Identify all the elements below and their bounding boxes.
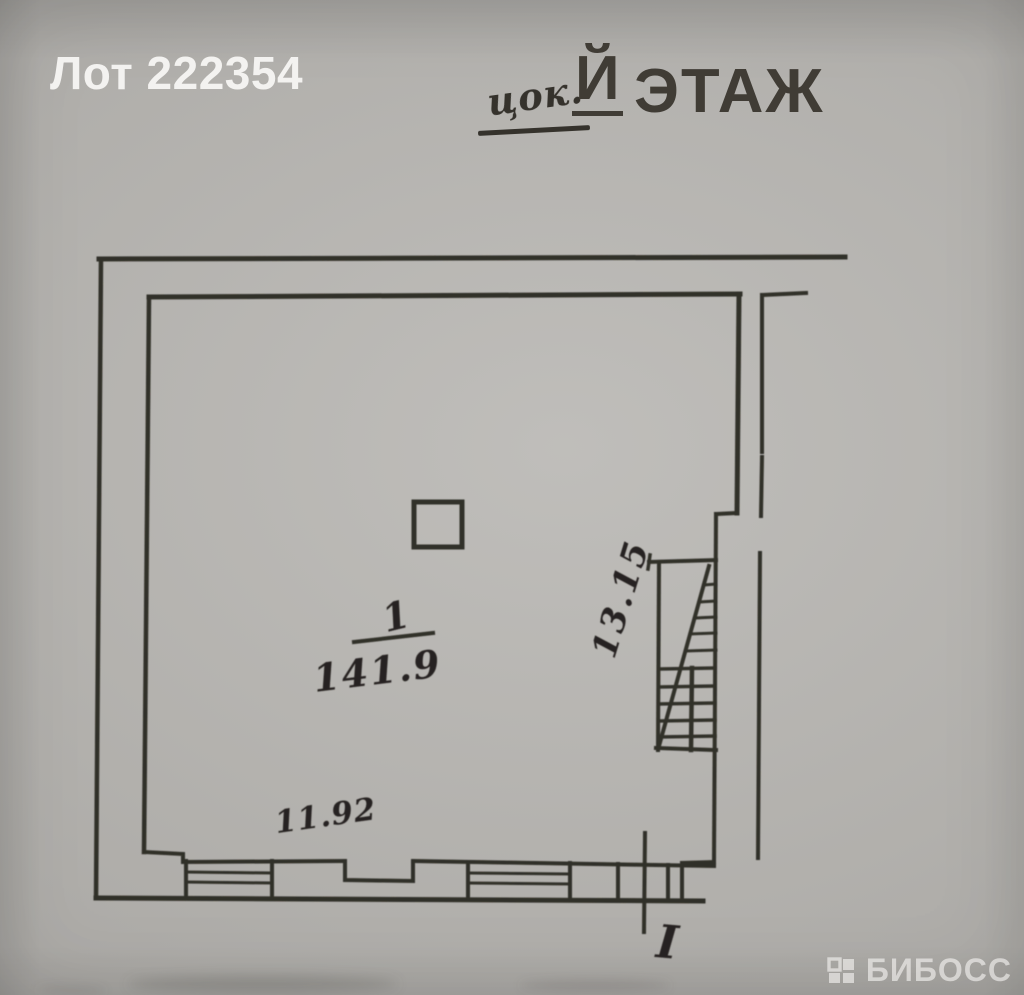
- section-cut-line: [644, 833, 645, 932]
- room-wall-left-step: [144, 852, 183, 862]
- handwritten-annotations: 1 141.9 11.92 13.15 I: [273, 535, 682, 970]
- outer-wall-right: [758, 295, 762, 858]
- stairwell-wall: [714, 514, 716, 862]
- room-area: 141.9: [311, 640, 445, 700]
- scanned-floorplan-page: Лот 222354 цок. Й ЭТАЖ: [0, 0, 1024, 995]
- biboss-logo-icon: [827, 956, 857, 986]
- stairs-mid-rail: [691, 668, 692, 750]
- windows: [186, 861, 668, 900]
- window-1-caps: [186, 861, 272, 898]
- outer-wall-left: [96, 259, 101, 898]
- inner-walls: [144, 294, 740, 899]
- stairs: [648, 555, 716, 750]
- watermark: БИБОСС: [827, 952, 1012, 989]
- section-cut: [644, 833, 645, 932]
- entrance-mark: I: [652, 914, 682, 970]
- dimension-bottom-width: 11.92: [273, 791, 379, 841]
- room-number: 1: [377, 591, 414, 641]
- outer-wall-right-stub: [762, 293, 806, 295]
- room-wall-right-jog: [716, 513, 737, 514]
- window-2-panes: [468, 873, 570, 884]
- room-wall-left: [144, 297, 149, 852]
- column: [414, 502, 462, 547]
- window-1-panes: [186, 872, 272, 883]
- room-wall-right: [737, 294, 739, 513]
- outer-wall-top: [99, 257, 845, 259]
- room-wall-bottom: [183, 861, 345, 862]
- dimension-right-height: 13.15: [584, 535, 658, 663]
- window-2-caps: [468, 862, 570, 900]
- watermark-brand-text: БИБОСС: [866, 952, 1012, 989]
- entrance-recess: [345, 861, 413, 881]
- room-wall-top: [149, 294, 740, 297]
- stairs-bottom: [656, 748, 716, 750]
- outer-walls: [96, 257, 845, 901]
- floor-plan-drawing: 1 141.9 11.92 13.15 I: [0, 0, 1024, 995]
- stairs-lower-treads: [659, 668, 715, 737]
